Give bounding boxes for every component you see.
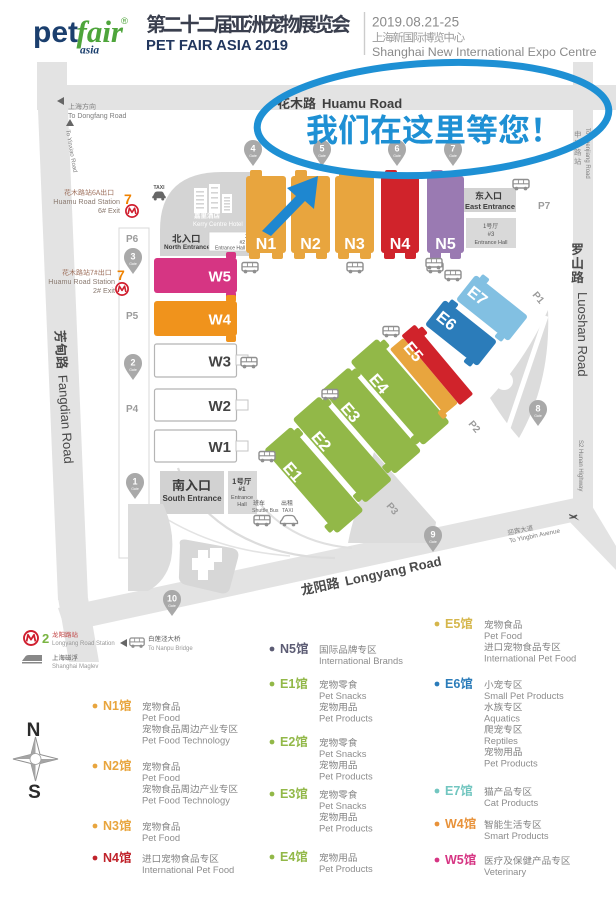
svg-text:Pet Food: Pet Food: [484, 630, 522, 641]
svg-text:N3: N3: [103, 819, 119, 833]
svg-text:N2: N2: [300, 236, 321, 253]
svg-text:P7: P7: [538, 201, 551, 212]
svg-text:Kerry Centre Hotel: Kerry Centre Hotel: [193, 222, 243, 228]
svg-text:10: 10: [167, 594, 177, 604]
svg-text:Smart Products: Smart Products: [484, 830, 549, 841]
svg-text:Pet Snacks: Pet Snacks: [319, 690, 367, 701]
svg-text:Gate: Gate: [129, 262, 137, 266]
svg-text:Pet Food Technology: Pet Food Technology: [142, 735, 230, 746]
svg-text:8: 8: [535, 404, 540, 414]
svg-text:International Pet Food: International Pet Food: [484, 653, 576, 664]
svg-text:Gate: Gate: [318, 154, 326, 158]
svg-text:Entrance Hall: Entrance Hall: [215, 246, 245, 252]
svg-text:N4: N4: [390, 236, 411, 253]
svg-text:Veterinary: Veterinary: [484, 866, 527, 877]
svg-text:Aquatics: Aquatics: [484, 713, 520, 724]
svg-text:Pet Food Technology: Pet Food Technology: [142, 795, 230, 806]
svg-text:Pet Products: Pet Products: [319, 863, 373, 874]
svg-text:Gate: Gate: [131, 487, 139, 491]
svg-text:Shanghai New International Exp: Shanghai New International Expo Centre: [372, 45, 597, 59]
svg-text:Shanghai Maglev: Shanghai Maglev: [52, 664, 98, 670]
svg-text:East Entrance: East Entrance: [465, 202, 515, 211]
svg-text:N1: N1: [256, 236, 277, 253]
svg-text:®: ®: [121, 16, 128, 27]
svg-text:To Nanpu Bridge: To Nanpu Bridge: [148, 646, 193, 652]
svg-text:Gate: Gate: [534, 414, 542, 418]
svg-text:4: 4: [250, 144, 255, 154]
svg-text:PET FAIR ASIA 2019: PET FAIR ASIA 2019: [146, 38, 288, 54]
svg-text:Gate: Gate: [249, 154, 257, 158]
svg-text:E5: E5: [445, 617, 460, 631]
svg-text:Shuttle Bus: Shuttle Bus: [252, 508, 279, 514]
svg-text:Huamu Road Station: Huamu Road Station: [48, 277, 115, 286]
svg-text:Hall: Hall: [237, 502, 246, 508]
svg-text:asia: asia: [80, 45, 99, 57]
svg-text:Longyang Road Station: Longyang Road Station: [52, 641, 115, 647]
svg-text:Entrance Hall: Entrance Hall: [474, 240, 507, 246]
svg-text:N3: N3: [344, 236, 365, 253]
svg-text:#1: #1: [238, 486, 246, 493]
svg-text:TAXI: TAXI: [282, 508, 293, 514]
svg-text:W5: W5: [445, 853, 464, 867]
svg-text:North Entrance: North Entrance: [164, 244, 211, 251]
svg-text:Gate: Gate: [168, 604, 176, 608]
svg-text:2: 2: [42, 631, 49, 646]
svg-text:6: 6: [394, 144, 399, 154]
svg-text:W3: W3: [209, 354, 232, 371]
svg-text:6# Exit: 6# Exit: [98, 206, 120, 215]
svg-text:E2: E2: [280, 735, 295, 749]
svg-text:W2: W2: [209, 398, 232, 415]
svg-text:Cat Products: Cat Products: [484, 797, 539, 808]
svg-text:W1: W1: [209, 439, 232, 456]
svg-text:2: 2: [130, 358, 135, 368]
svg-text:#3: #3: [488, 232, 495, 238]
svg-text:Pet Food: Pet Food: [142, 772, 180, 783]
svg-text:2# Exit: 2# Exit: [93, 286, 115, 295]
svg-text:Entrance: Entrance: [231, 495, 253, 501]
svg-text:W4: W4: [209, 312, 232, 329]
svg-text:Reptiles: Reptiles: [484, 735, 518, 746]
svg-text:P5: P5: [126, 311, 139, 322]
svg-text:S2 Hunan Highway: S2 Hunan Highway: [577, 440, 583, 491]
svg-text:Pet Snacks: Pet Snacks: [319, 800, 367, 811]
svg-text:Pet Products: Pet Products: [484, 757, 538, 768]
svg-text:South Entrance: South Entrance: [162, 494, 222, 503]
svg-text:pet: pet: [33, 16, 78, 49]
svg-text:International Pet Food: International Pet Food: [142, 864, 234, 875]
svg-text:3: 3: [130, 252, 135, 262]
svg-text:Huamu Road Station: Huamu Road Station: [53, 197, 120, 206]
svg-text:S: S: [28, 782, 41, 803]
svg-text:Gate: Gate: [429, 540, 437, 544]
svg-text:Pet Products: Pet Products: [319, 771, 373, 782]
svg-text:Luoshan Road: Luoshan Road: [575, 292, 590, 377]
svg-text:N: N: [27, 720, 41, 741]
svg-text:Pet Products: Pet Products: [319, 713, 373, 724]
svg-text:7: 7: [450, 144, 455, 154]
svg-text:Pet Food: Pet Food: [142, 832, 180, 843]
svg-text:Gate: Gate: [449, 154, 457, 158]
svg-text:E3: E3: [280, 787, 295, 801]
svg-text:N4: N4: [103, 851, 119, 865]
svg-text:E7: E7: [445, 784, 460, 798]
svg-text:International Brands: International Brands: [319, 655, 403, 666]
svg-text:Huamu Road: Huamu Road: [322, 96, 402, 111]
svg-text:N1: N1: [103, 699, 119, 713]
svg-text:1: 1: [132, 477, 137, 487]
svg-text:Pet Food: Pet Food: [142, 712, 180, 723]
svg-text:Gate: Gate: [129, 368, 137, 372]
svg-text:N2: N2: [103, 759, 119, 773]
svg-text:Gate: Gate: [393, 154, 401, 158]
svg-text:N5: N5: [280, 642, 296, 656]
svg-text:Pet Products: Pet Products: [319, 823, 373, 834]
svg-text:E4: E4: [280, 850, 295, 864]
svg-text:N5: N5: [435, 236, 456, 253]
svg-text:7: 7: [117, 267, 125, 283]
svg-text:E1: E1: [280, 677, 295, 691]
svg-text:W4: W4: [445, 817, 464, 831]
svg-text:2019.08.21-25: 2019.08.21-25: [372, 15, 459, 30]
svg-text:5: 5: [319, 144, 324, 154]
svg-text:To Dongfang Road: To Dongfang Road: [68, 113, 126, 120]
svg-text:TAXI: TAXI: [153, 185, 165, 191]
svg-text:Small Pet Products: Small Pet Products: [484, 690, 564, 701]
svg-text:9: 9: [430, 530, 435, 540]
svg-text:P4: P4: [126, 404, 139, 415]
svg-text:W5: W5: [209, 269, 232, 286]
svg-text:Pet Snacks: Pet Snacks: [319, 748, 367, 759]
svg-text:E6: E6: [445, 677, 460, 691]
svg-text:P6: P6: [126, 234, 139, 245]
